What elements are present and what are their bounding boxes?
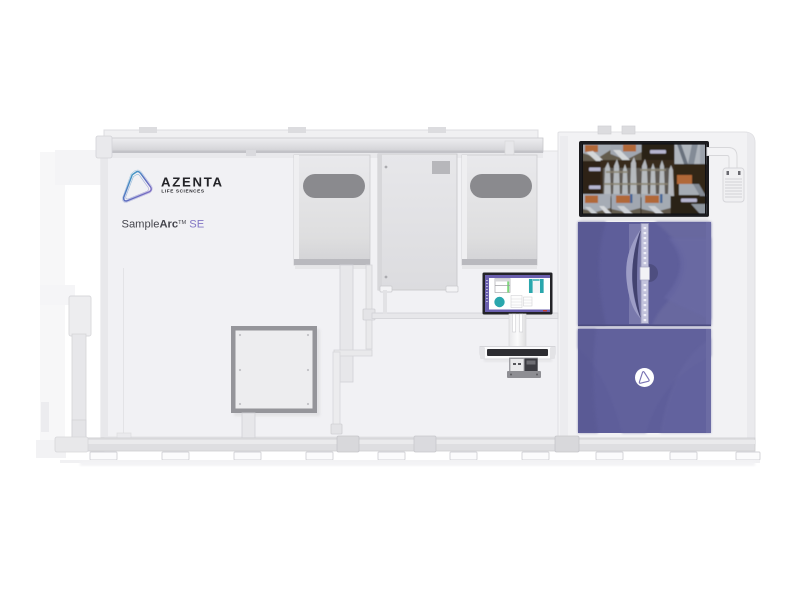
- svg-text:AZENTA: AZENTA: [161, 175, 224, 190]
- svg-text:LIFE SCIENCES: LIFE SCIENCES: [161, 189, 204, 194]
- svg-text:SampleArcTM SE: SampleArcTM SE: [122, 219, 205, 231]
